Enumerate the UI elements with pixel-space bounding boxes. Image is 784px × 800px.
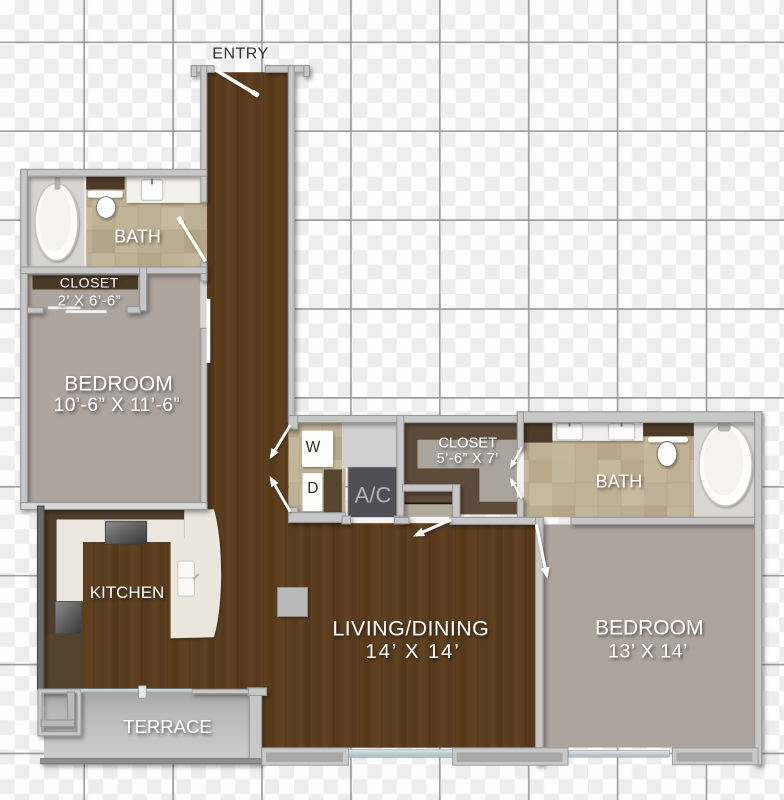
svg-text:CLOSET: CLOSET [438, 435, 497, 451]
svg-text:5’-6” X 7’: 5’-6” X 7’ [437, 451, 499, 467]
svg-text:ENTRY: ENTRY [212, 46, 268, 63]
svg-text:A/C: A/C [355, 483, 392, 508]
svg-text:14’ X 14’: 14’ X 14’ [365, 640, 460, 663]
svg-text:TERRACE: TERRACE [123, 716, 211, 737]
svg-text:BEDROOM: BEDROOM [595, 617, 704, 640]
svg-text:BEDROOM: BEDROOM [64, 373, 173, 396]
svg-text:D: D [307, 480, 318, 497]
svg-text:13’ X 14’: 13’ X 14’ [608, 641, 688, 663]
svg-text:BATH: BATH [114, 227, 161, 247]
svg-text:KITCHEN: KITCHEN [90, 583, 165, 602]
svg-text:LIVING/DINING: LIVING/DINING [332, 617, 489, 641]
svg-text:10’-6” X 11’-6”: 10’-6” X 11’-6” [54, 395, 180, 416]
svg-text:BATH: BATH [596, 471, 643, 491]
svg-text:2’ X 6’-6”: 2’ X 6’-6” [58, 293, 121, 310]
svg-text:CLOSET: CLOSET [60, 275, 119, 291]
svg-text:W: W [306, 439, 321, 456]
